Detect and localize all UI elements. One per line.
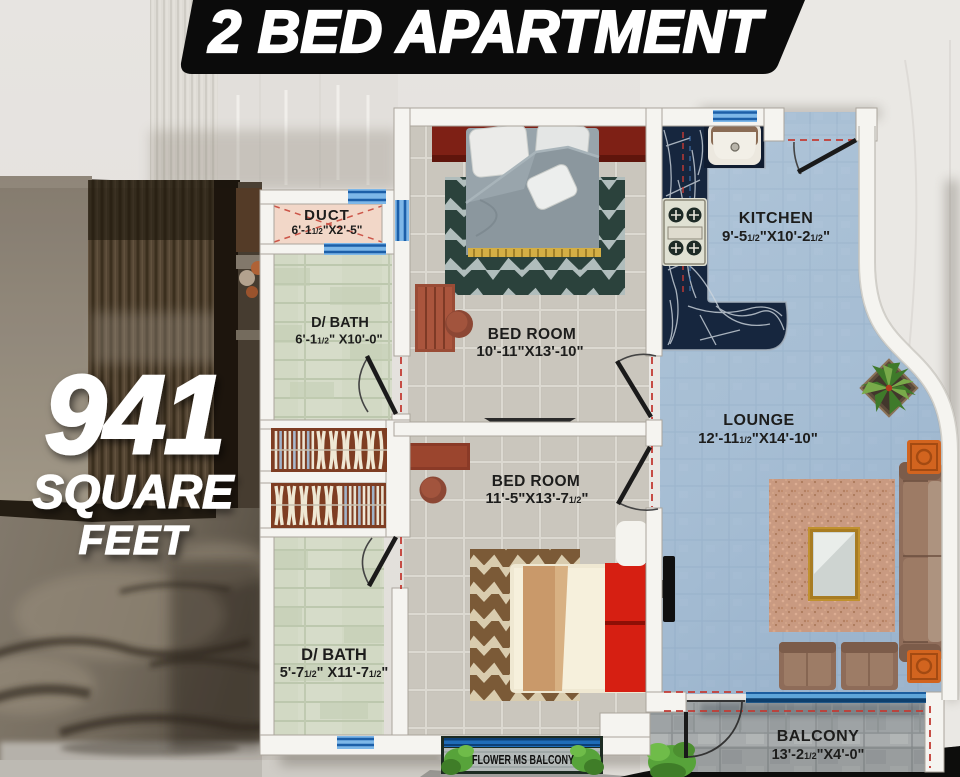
svg-text:941: 941 — [44, 353, 223, 477]
svg-text:12'-111/2"X14'-10": 12'-111/2"X14'-10" — [698, 430, 818, 447]
svg-text:BALCONY: BALCONY — [777, 728, 860, 745]
svg-text:DUCT: DUCT — [304, 207, 350, 224]
svg-text:SQUARE: SQUARE — [32, 465, 235, 518]
svg-text:6'-11/2" X10'-0": 6'-11/2" X10'-0" — [295, 332, 382, 347]
svg-text:6'-11/2"X2'-5": 6'-11/2"X2'-5" — [292, 223, 363, 237]
svg-text:KITCHEN: KITCHEN — [739, 210, 814, 227]
svg-text:FLOWER MS BALCONY: FLOWER MS BALCONY — [472, 753, 574, 767]
svg-text:BED ROOM: BED ROOM — [488, 326, 576, 343]
svg-text:D/ BATH: D/ BATH — [311, 315, 369, 331]
svg-text:10'-11"X13'-10": 10'-11"X13'-10" — [476, 343, 583, 360]
svg-text:FEET: FEET — [79, 517, 190, 563]
svg-text:13'-21/2"X4'-0": 13'-21/2"X4'-0" — [772, 747, 865, 763]
svg-text:LOUNGE: LOUNGE — [723, 412, 794, 429]
svg-text:2 BED APARTMENT: 2 BED APARTMENT — [208, 0, 767, 65]
svg-text:BED ROOM: BED ROOM — [492, 473, 580, 490]
svg-text:D/ BATH: D/ BATH — [301, 646, 367, 664]
